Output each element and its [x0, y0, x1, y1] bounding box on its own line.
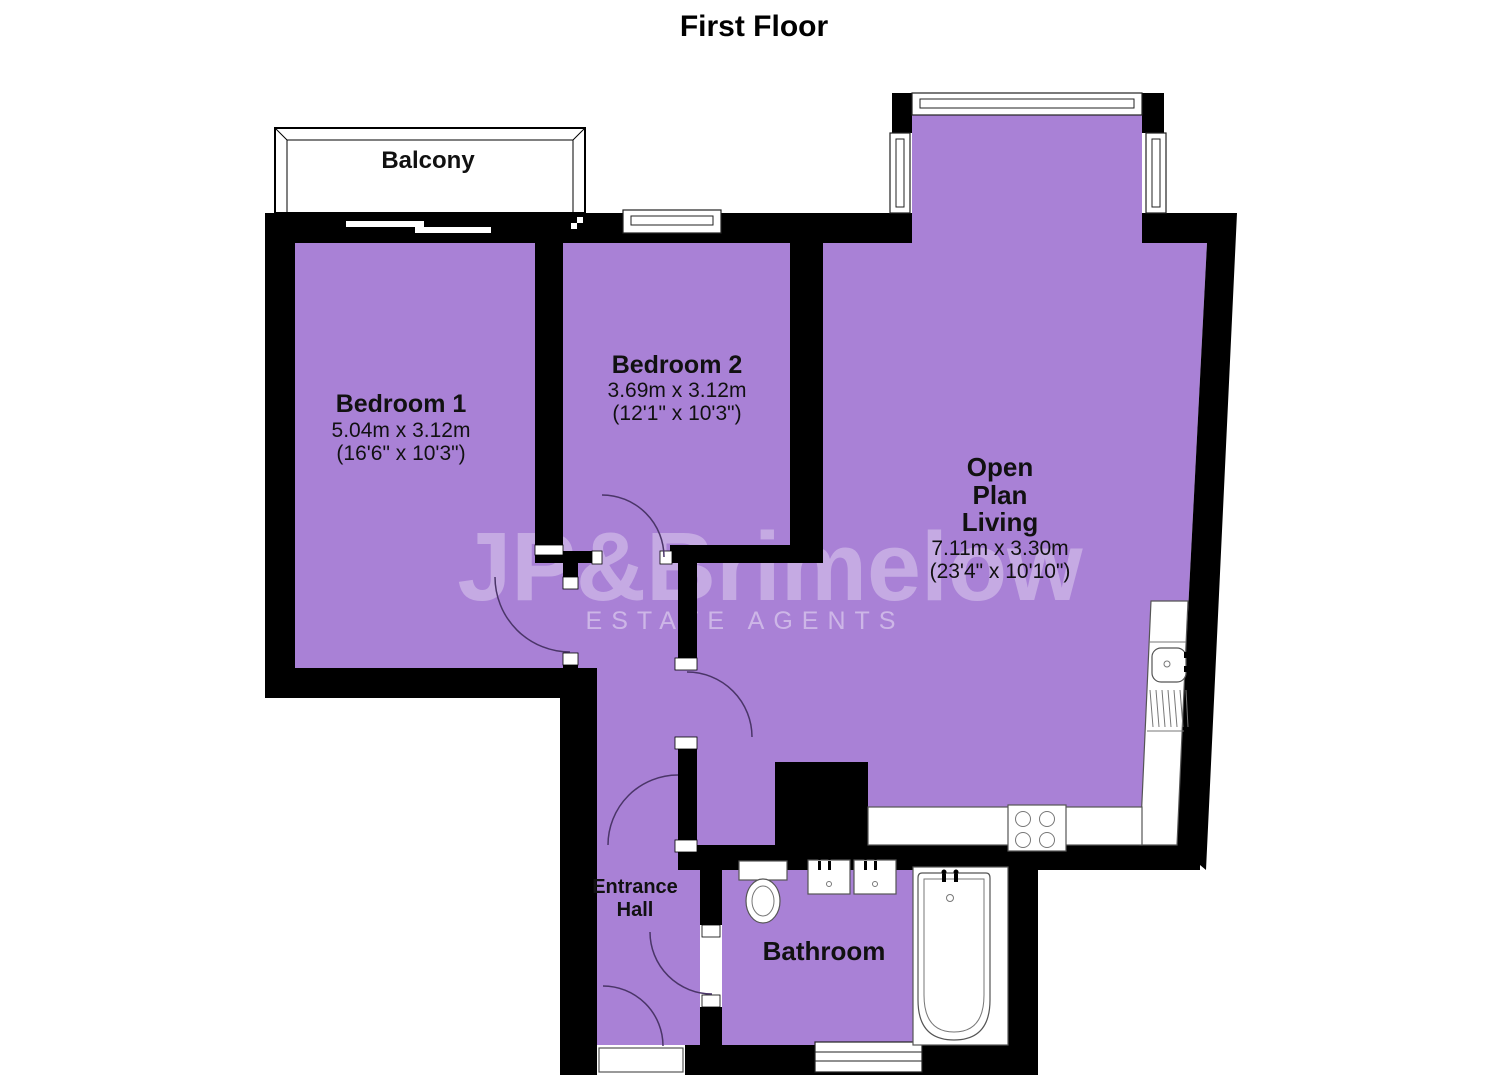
- wall-bay-top-left-block: [892, 93, 912, 133]
- wall-hall-bottom-right: [685, 1045, 722, 1075]
- balcony-label: Balcony: [381, 147, 475, 174]
- wall-hall-living-a: [678, 563, 697, 658]
- page-title: First Floor: [680, 10, 829, 43]
- entrance-hall-line1: Entrance: [592, 876, 678, 898]
- watermark-tagline: ESTATE AGENTS: [586, 607, 905, 635]
- basin-icon: [854, 856, 896, 894]
- entrance-door-slab: [599, 1048, 683, 1072]
- wall-bathroom-right: [1008, 845, 1038, 1075]
- bay-top-window: [912, 93, 1142, 115]
- wall-cap: [535, 545, 563, 555]
- bathroom-name: Bathroom: [763, 936, 886, 966]
- balcony-marker: [577, 217, 583, 223]
- balcony-marker: [571, 223, 577, 229]
- living-imperial: (23'4" x 10'10"): [930, 560, 1071, 583]
- wall-bedroom2-right: [790, 243, 823, 563]
- wall-cap: [702, 925, 720, 937]
- wall-cap: [675, 840, 697, 852]
- kitchen-counter-bottom: [868, 807, 1142, 845]
- sliding-door-pane: [346, 221, 424, 227]
- hob-icon: [1008, 805, 1066, 851]
- wall-bay-top-right-block: [1142, 93, 1164, 133]
- wall-cap: [563, 653, 578, 665]
- wall-void-block: [775, 762, 868, 857]
- wall-stub-a: [563, 563, 578, 579]
- bay-left-window: [890, 133, 910, 213]
- wall-hall-bathroom-b: [700, 1007, 722, 1045]
- bedroom2-metric: 3.69m x 3.12m: [608, 379, 747, 402]
- floorplan-drawing: JP&Brimelow ESTATE AGENTS: [0, 0, 1485, 1080]
- bedroom2-imperial: (12'1" x 10'3"): [612, 402, 741, 425]
- balcony: [275, 128, 585, 229]
- wall-hall-bathroom-a: [700, 867, 722, 925]
- bathroom-window: [815, 1042, 922, 1072]
- wall-bedroom1-bottom: [265, 668, 578, 698]
- wall-bed1-bed2-divider: [535, 243, 563, 545]
- bedroom1-imperial: (16'6" x 10'3"): [336, 442, 465, 465]
- living-name-line1: Open: [967, 452, 1033, 482]
- living-metric: 7.11m x 3.30m: [931, 537, 1068, 560]
- wall-left: [265, 213, 295, 698]
- basin-icon: [808, 856, 850, 894]
- bathtub-icon: [918, 870, 990, 1041]
- wall-cap: [592, 551, 602, 564]
- wall-hall-left: [560, 668, 597, 1075]
- wall-cap: [563, 577, 578, 589]
- bay-floor: [912, 115, 1142, 245]
- living-name-line3: Living: [962, 507, 1039, 537]
- sliding-door-pane: [415, 227, 491, 233]
- living-name-line2: Plan: [973, 480, 1028, 510]
- bedroom2-name: Bedroom 2: [612, 351, 743, 379]
- wall-cap: [702, 995, 720, 1007]
- wall-hall-living-b: [678, 749, 697, 840]
- wall-cap: [675, 658, 697, 670]
- bedroom1-name: Bedroom 1: [336, 390, 467, 418]
- floorplan-page: JP&Brimelow ESTATE AGENTS: [0, 0, 1485, 1080]
- wall-bay-base-right-block: [1142, 213, 1164, 243]
- wall-bay-base-left-block: [892, 213, 912, 243]
- bedroom1-metric: 5.04m x 3.12m: [332, 419, 471, 442]
- bay-right-window: [1146, 133, 1166, 213]
- entrance-hall-line2: Hall: [617, 899, 654, 921]
- wall-cap: [675, 737, 697, 749]
- bedroom2-window: [623, 210, 721, 233]
- wall-cap: [660, 551, 672, 564]
